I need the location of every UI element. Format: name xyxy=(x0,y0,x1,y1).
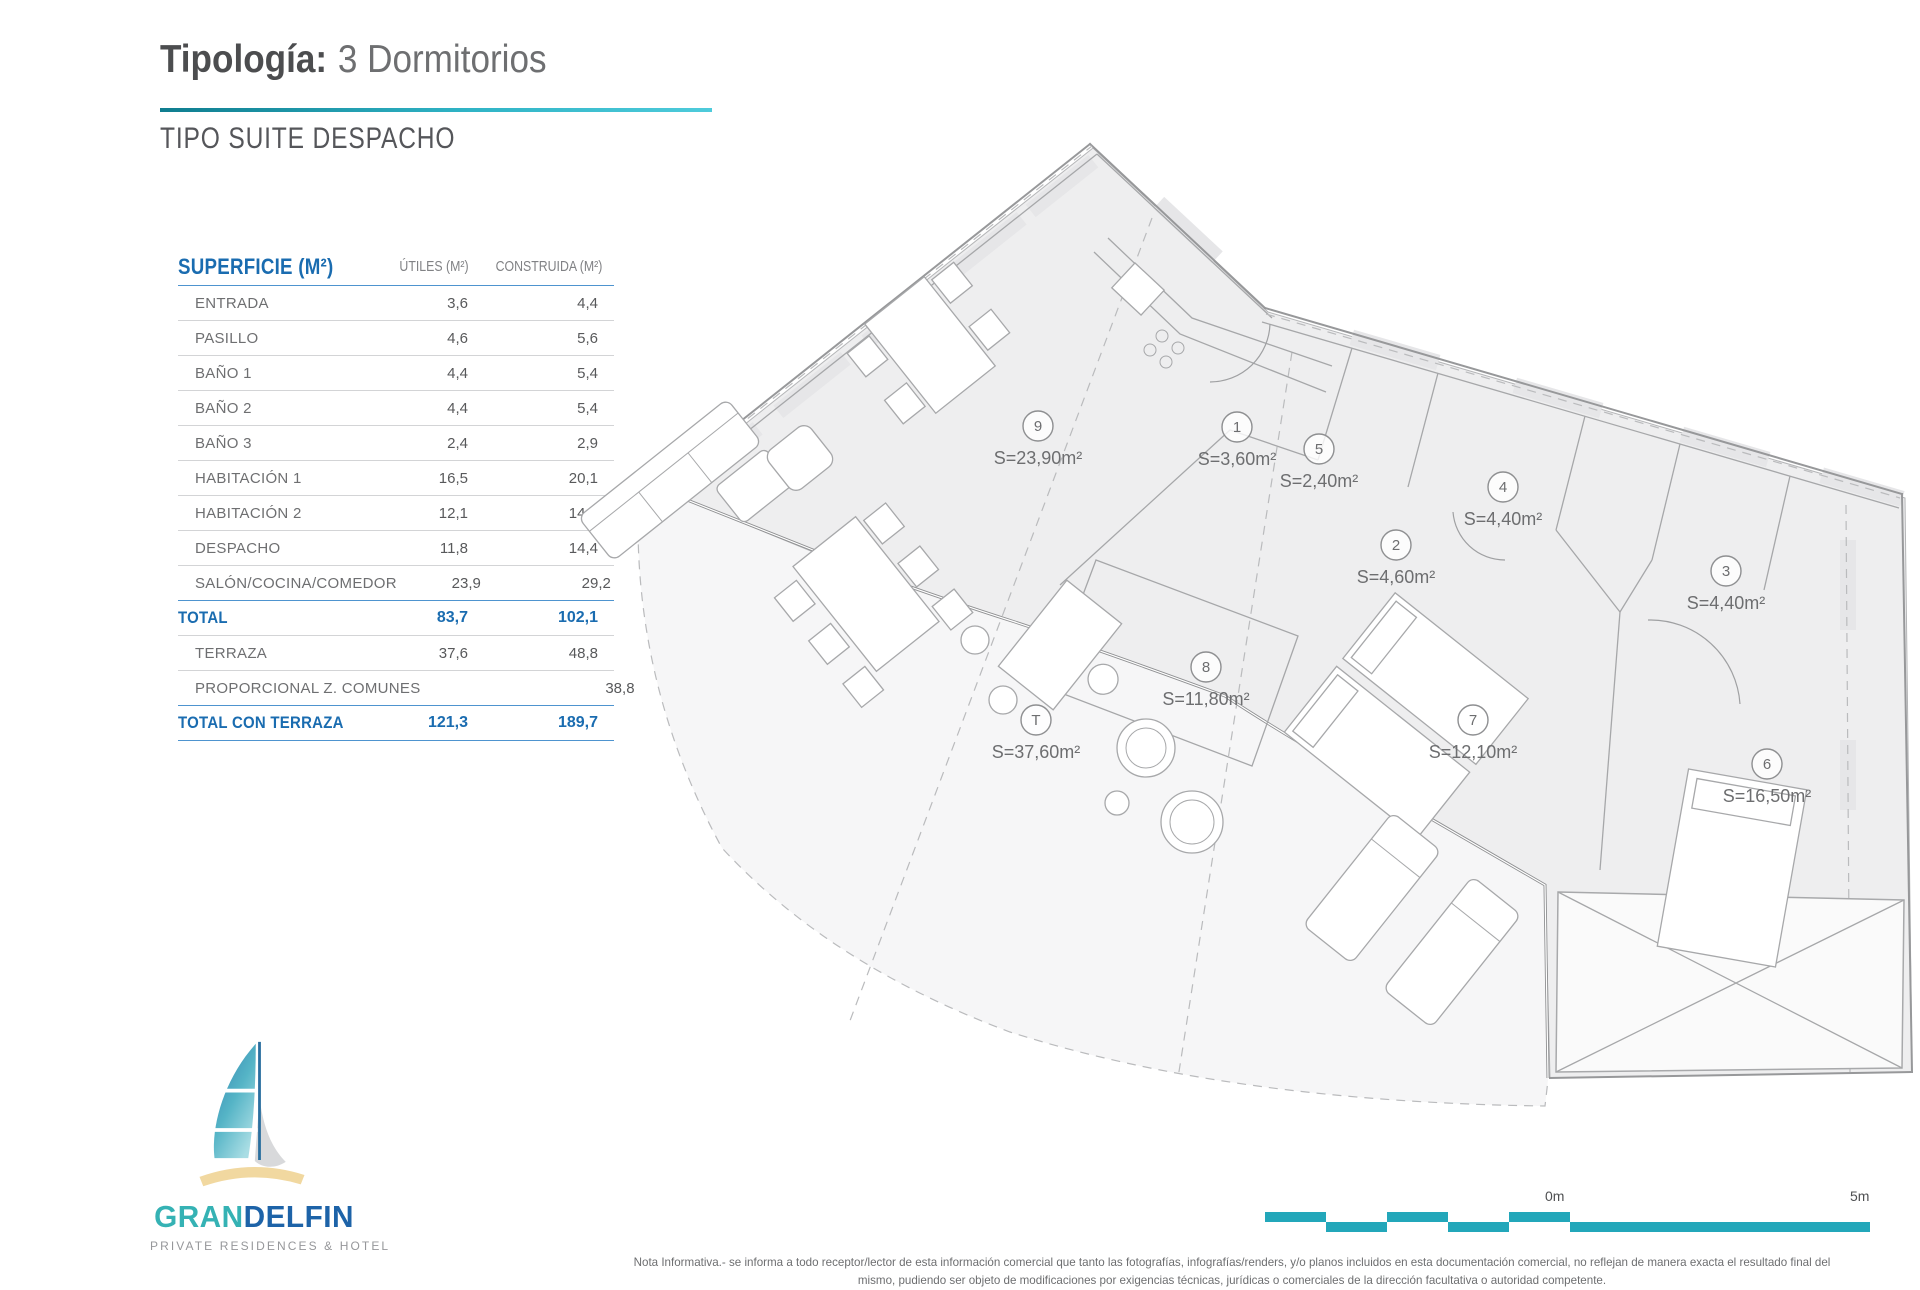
brand-name: GRANDELFIN xyxy=(154,1199,350,1235)
brand-logo: GRANDELFIN PRIVATE RESIDENCES & HOTEL xyxy=(150,1040,354,1253)
svg-text:S=4,40m²: S=4,40m² xyxy=(1687,593,1766,613)
svg-text:S=16,50m²: S=16,50m² xyxy=(1723,786,1812,806)
scale-five-label: 5m xyxy=(1850,1188,1869,1204)
svg-text:S=3,60m²: S=3,60m² xyxy=(1198,449,1277,469)
brochure-page: { "header": { "title_bold": "Tipología:"… xyxy=(0,0,1920,1280)
brand-name-delfin: DELFIN xyxy=(244,1199,354,1234)
svg-text:5: 5 xyxy=(1315,441,1323,458)
svg-text:S=4,40m²: S=4,40m² xyxy=(1464,509,1543,529)
office-chair xyxy=(989,686,1017,714)
brand-caption: PRIVATE RESIDENCES & HOTEL xyxy=(150,1239,354,1253)
office-chair xyxy=(961,626,989,654)
svg-text:S=23,90m²: S=23,90m² xyxy=(994,448,1083,468)
disclaimer-line1: Nota Informativa.- se informa a todo rec… xyxy=(556,1254,1908,1272)
svg-text:1: 1 xyxy=(1233,419,1241,436)
svg-text:8: 8 xyxy=(1202,659,1210,676)
svg-text:S=12,10m²: S=12,10m² xyxy=(1429,742,1518,762)
svg-text:T: T xyxy=(1031,712,1040,729)
svg-text:S=37,60m²: S=37,60m² xyxy=(992,742,1081,762)
svg-text:2: 2 xyxy=(1392,537,1400,554)
svg-text:6: 6 xyxy=(1763,756,1771,773)
scale-bar xyxy=(1265,1212,1873,1232)
disclaimer-line2-cutoff: mismo, pudiendo ser objeto de modificaci… xyxy=(556,1272,1908,1290)
svg-text:7: 7 xyxy=(1469,712,1477,729)
legal-disclaimer: Nota Informativa.- se informa a todo rec… xyxy=(556,1254,1908,1290)
svg-text:S=2,40m²: S=2,40m² xyxy=(1280,471,1359,491)
brand-name-gran: GRAN xyxy=(154,1199,244,1234)
svg-text:9: 9 xyxy=(1034,418,1042,435)
sail-logo-icon xyxy=(182,1040,322,1190)
scale-zero-label: 0m xyxy=(1545,1188,1564,1204)
svg-text:4: 4 xyxy=(1499,479,1507,496)
svg-text:S=11,80m²: S=11,80m² xyxy=(1162,689,1249,709)
svg-text:S=4,60m²: S=4,60m² xyxy=(1357,567,1436,587)
svg-text:3: 3 xyxy=(1722,563,1730,580)
